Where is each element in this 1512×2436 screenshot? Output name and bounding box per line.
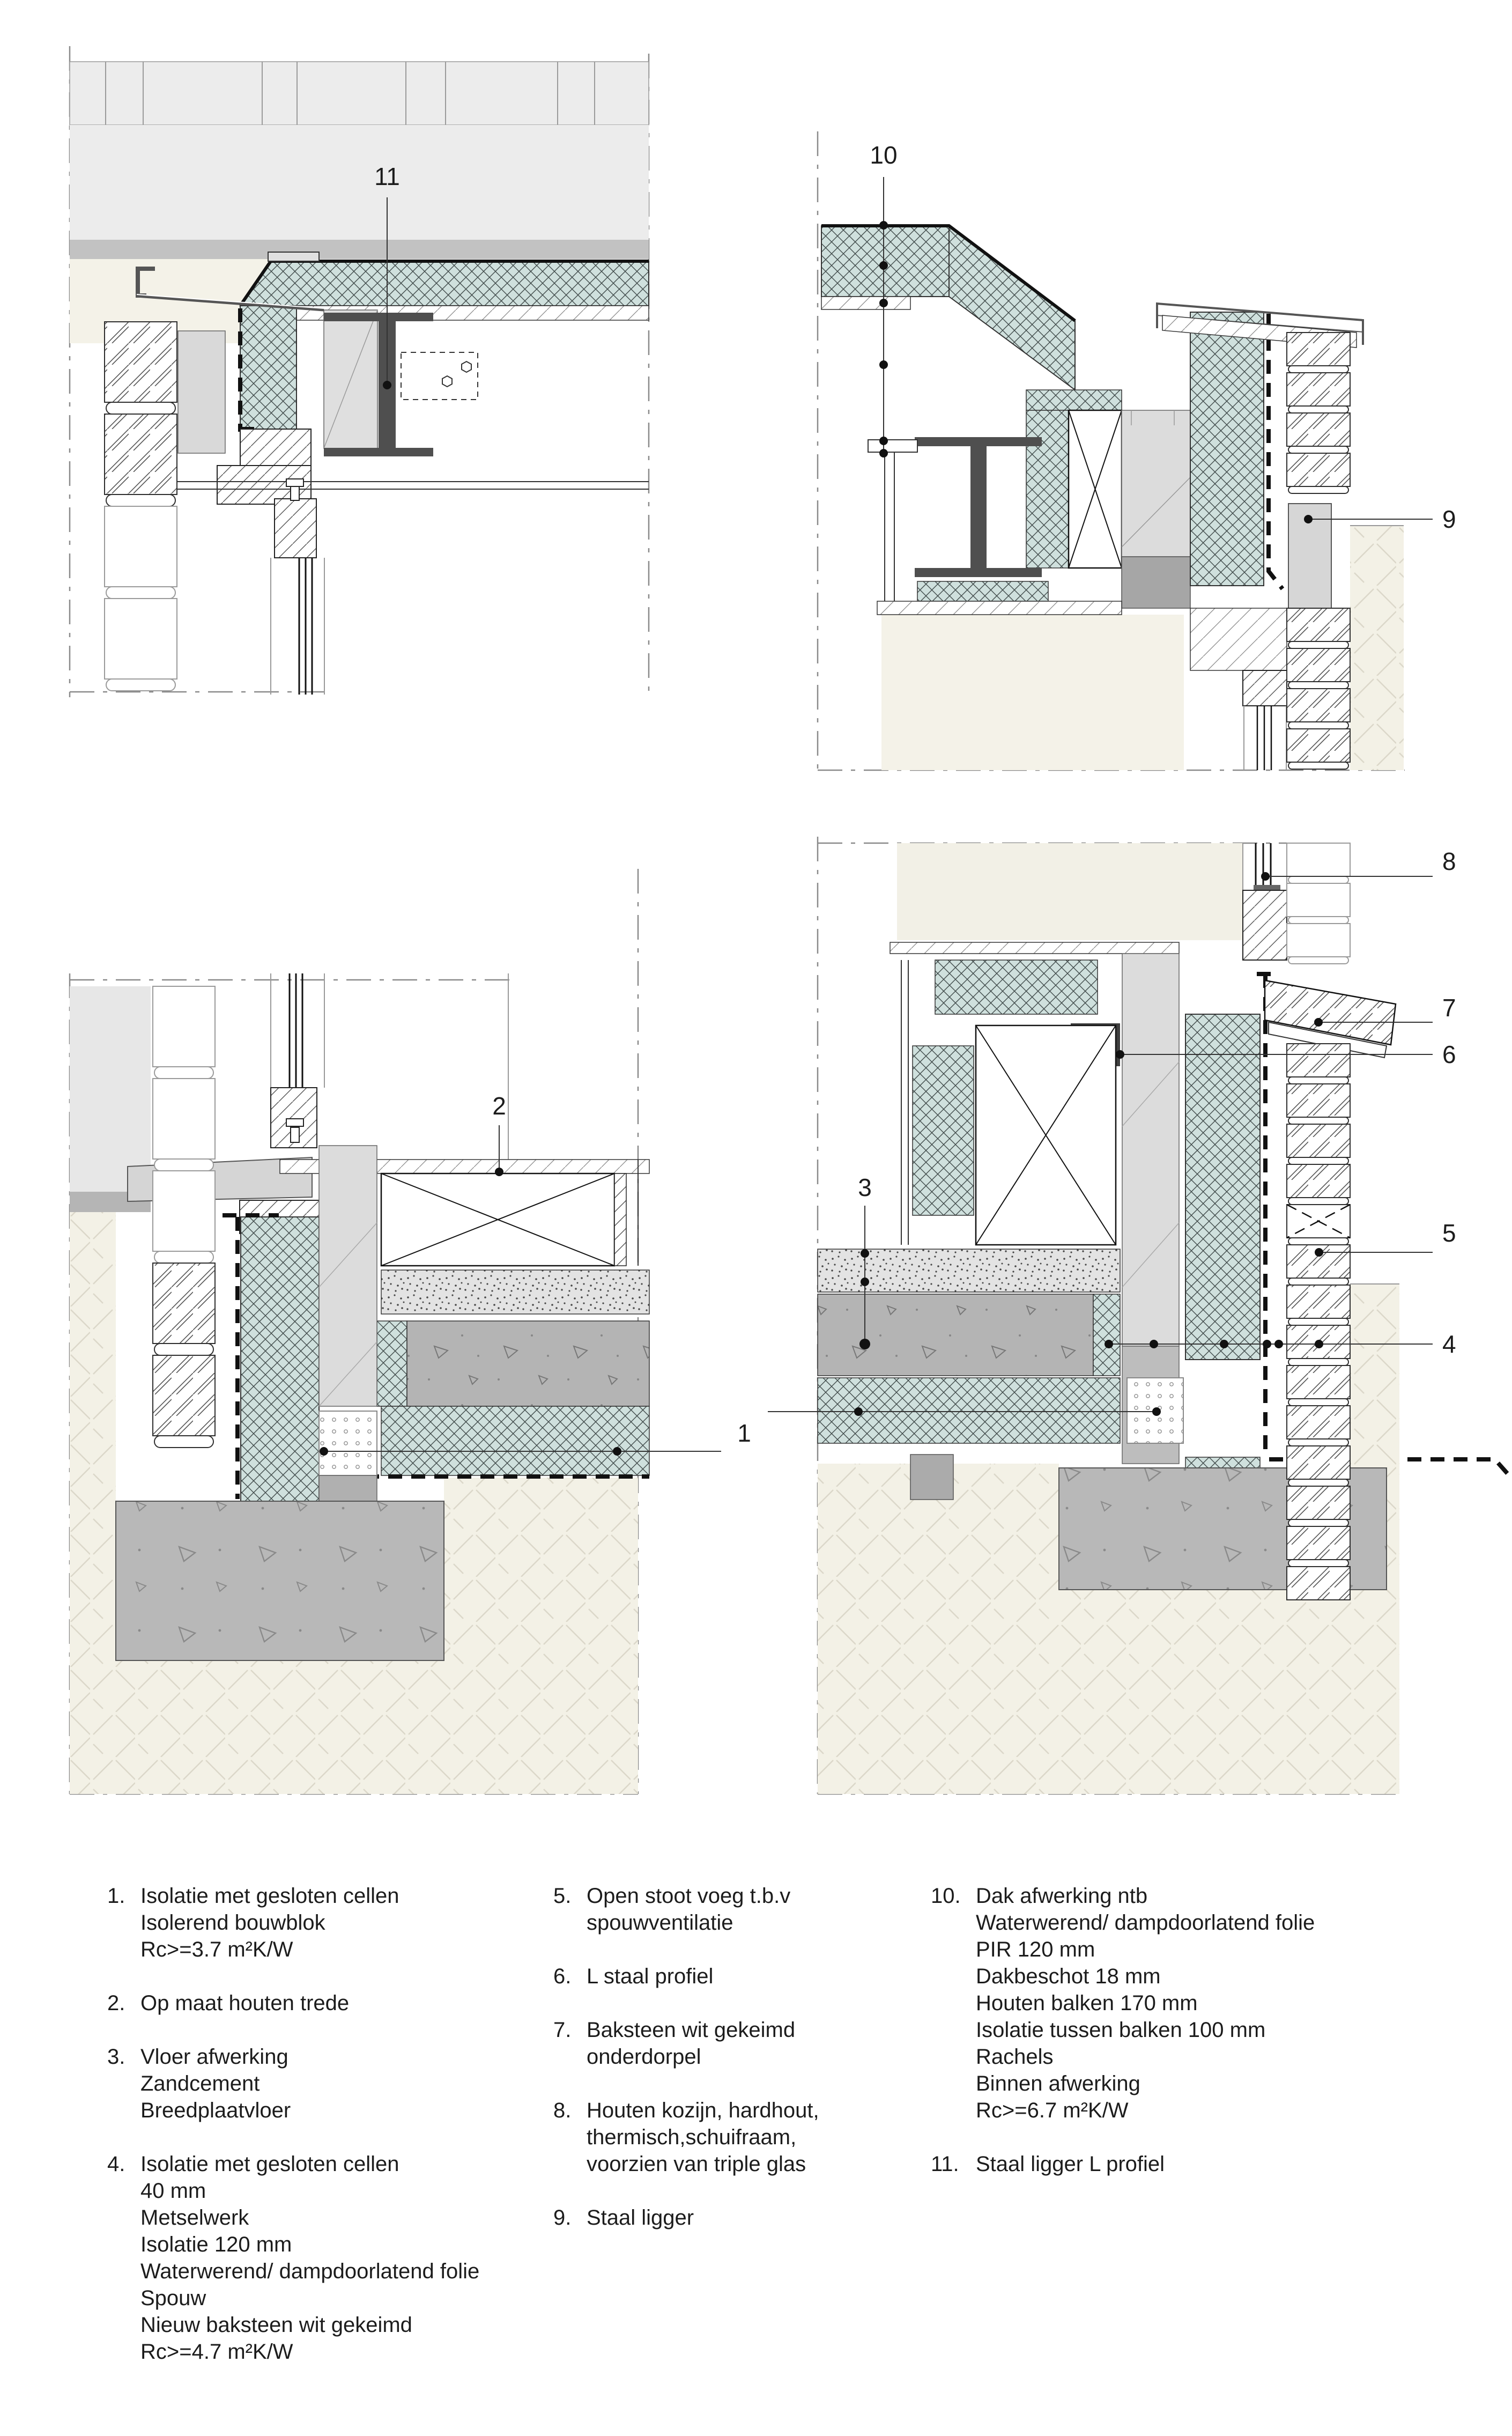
inner-leaf-block [1122, 410, 1190, 557]
window-frame-section [271, 479, 324, 695]
roof-build-up-band [70, 125, 649, 240]
soil [1350, 526, 1404, 770]
legend-item-8: 8. Houten kozijn, hardhout, thermisch,sc… [553, 2097, 896, 2177]
wall-insulation-column [1190, 312, 1264, 586]
foundation-zone [881, 615, 1184, 770]
wall-insulation-column [241, 1217, 319, 1501]
floor-insulation [381, 1406, 649, 1475]
svg-text:8: 8 [1442, 847, 1456, 875]
svg-text:1: 1 [737, 1419, 751, 1447]
legend-item-11: 11. Staal ligger L profiel [931, 2151, 1413, 2177]
bolt-hex-icon [462, 361, 471, 372]
roof-board-band [821, 297, 910, 309]
legend-column-3: 10. Dak afwerking ntb Waterwerend/ dampd… [931, 1883, 1413, 2204]
timber-stud-xbrace [1069, 410, 1122, 568]
soil [444, 1478, 638, 1794]
timber-block [1190, 608, 1287, 670]
legend-column-1: 1. Isolatie met gesloten cellen Isoleren… [107, 1883, 525, 2392]
legend-item-3: 3. Vloer afwerking Zandcement Breedplaat… [107, 2043, 525, 2124]
bolt-anchor-icon [286, 1119, 303, 1126]
legend-item-4: 4. Isolatie met gesloten cellen 40 mm Me… [107, 2151, 525, 2365]
legend-item-9: 9. Staal ligger [553, 2204, 896, 2231]
gray-strip [70, 240, 649, 259]
svg-text:5: 5 [1442, 1219, 1456, 1247]
legend-item-2: 2. Op maat houten trede [107, 1990, 525, 2017]
roof-insulation-slab [240, 261, 649, 306]
inner-leaf-block [319, 1146, 377, 1406]
head-insulation-strip [935, 960, 1098, 1014]
floor-edge-xbrace [381, 1160, 638, 1266]
svg-text:6: 6 [1442, 1040, 1456, 1068]
inner-leaf-block [178, 331, 225, 453]
interior-zone [897, 843, 1243, 940]
floor-insulation [818, 1378, 1120, 1443]
bolt-anchor-icon [286, 479, 303, 486]
floor-insulation-strip [917, 581, 1048, 601]
vapour-foil-dashed [1269, 314, 1283, 589]
lintel-block [1122, 557, 1190, 608]
wall-insulation-column [1185, 1014, 1260, 1360]
bolt-hex-icon [442, 376, 452, 387]
svg-text:7: 7 [1442, 994, 1456, 1022]
window-frame-section [271, 973, 324, 1148]
window-head-plate [868, 440, 917, 452]
svg-text:3: 3 [858, 1173, 872, 1201]
steel-beam [915, 437, 1042, 577]
roof-plank-band [70, 62, 649, 125]
svg-text:4: 4 [1442, 1330, 1456, 1358]
ceiling-band [890, 942, 1179, 954]
legend-item-1: 1. Isolatie met gesloten cellen Isoleren… [107, 1883, 525, 1963]
drawing-sheet: 1 2 3 4 5 6 7 8 9 10 [0, 0, 1512, 2436]
legend-item-5: 5. Open stoot voeg t.b.v spouwventilatie [553, 1883, 896, 1936]
insulation-strip [913, 1046, 974, 1215]
svg-text:2: 2 [492, 1092, 506, 1120]
window-frame [1243, 670, 1287, 706]
inner-leaf-block [1122, 954, 1179, 1346]
roof-insulation-slab [821, 226, 949, 297]
svg-text:10: 10 [870, 141, 897, 169]
insulation-column [1026, 410, 1069, 568]
triple-glass-lines [1257, 706, 1271, 770]
anchor-plate [401, 352, 478, 400]
triple-glass-lines [299, 558, 312, 695]
window-xbrace [976, 1025, 1116, 1245]
window-frame-section [1243, 843, 1287, 960]
concrete-foundation [116, 1501, 444, 1660]
triple-glass-lines [290, 973, 302, 1088]
insulating-building-block [319, 1411, 377, 1475]
window-frame-lines [885, 452, 894, 609]
timber-block [240, 429, 311, 466]
svg-text:9: 9 [1442, 505, 1456, 533]
window-frame-lines [901, 960, 908, 1245]
interior-zone [70, 986, 151, 1192]
legend-item-10: 10. Dak afwerking ntb Waterwerend/ dampd… [931, 1883, 1413, 2124]
floor-deck-band [877, 601, 1122, 615]
soil [818, 1464, 1059, 1794]
screed-layer [381, 1270, 649, 1314]
concrete-floor-slab [407, 1321, 649, 1406]
legend-item-7: 7. Baksteen wit gekeimd onderdorpel [553, 2017, 896, 2070]
legend-column-2: 5. Open stoot voeg t.b.v spouwventilatie… [553, 1883, 896, 2258]
svg-text:11: 11 [374, 163, 400, 190]
detail-foundation-new-wall [818, 843, 1508, 1794]
soil [1059, 1590, 1399, 1794]
legend-item-6: 6. L staal profiel [553, 1963, 896, 1990]
concrete-floor-slab [818, 1294, 1093, 1376]
wall-insulation-column [240, 306, 297, 429]
